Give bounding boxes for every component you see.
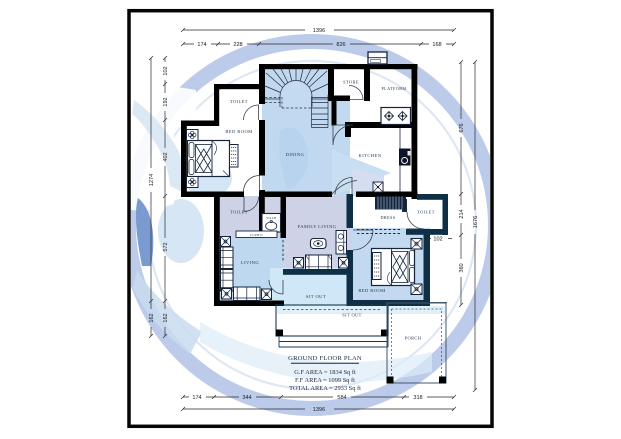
svg-text:102: 102 xyxy=(163,66,169,75)
svg-text:GROUND FLOOR PLAN: GROUND FLOOR PLAN xyxy=(288,355,362,362)
svg-text:344: 344 xyxy=(242,395,251,401)
svg-text:174: 174 xyxy=(192,395,201,401)
svg-text:102: 102 xyxy=(433,237,442,243)
svg-text:WASH: WASH xyxy=(266,216,277,220)
svg-text:KITCHEN: KITCHEN xyxy=(359,153,382,158)
svg-text:1676: 1676 xyxy=(473,216,479,228)
svg-text:1396: 1396 xyxy=(313,407,325,413)
svg-text:STORE: STORE xyxy=(343,80,359,85)
svg-text:CUPB'D: CUPB'D xyxy=(250,233,263,237)
svg-text:FAMILY LIVING: FAMILY LIVING xyxy=(298,224,337,229)
svg-text:826: 826 xyxy=(336,42,345,48)
svg-text:TOILET: TOILET xyxy=(417,210,435,215)
svg-text:162: 162 xyxy=(149,313,155,322)
svg-text:PORCH: PORCH xyxy=(405,336,422,341)
svg-text:TOILET: TOILET xyxy=(230,99,248,104)
svg-text:DINING: DINING xyxy=(286,152,305,157)
svg-text:584: 584 xyxy=(337,395,346,401)
svg-text:F.F AREA = 1099 Sq ft: F.F AREA = 1099 Sq ft xyxy=(295,377,355,384)
svg-text:TOTAL AREA = 2933 Sq ft: TOTAL AREA = 2933 Sq ft xyxy=(289,385,361,392)
svg-text:174: 174 xyxy=(197,42,206,48)
svg-text:BED ROOM: BED ROOM xyxy=(225,129,252,134)
svg-text:TOILET: TOILET xyxy=(230,210,248,215)
svg-text:228: 228 xyxy=(233,42,242,48)
svg-text:SIT OUT: SIT OUT xyxy=(342,313,361,318)
svg-text:1396: 1396 xyxy=(313,28,325,34)
svg-text:1274: 1274 xyxy=(149,174,155,186)
svg-text:LIVING: LIVING xyxy=(241,260,260,265)
svg-text:318: 318 xyxy=(413,395,422,401)
svg-text:DRESS: DRESS xyxy=(380,215,395,220)
svg-text:214: 214 xyxy=(459,209,465,218)
svg-text:SIT OUT: SIT OUT xyxy=(306,294,326,299)
svg-text:BED ROOM: BED ROOM xyxy=(358,288,385,293)
svg-text:192: 192 xyxy=(163,97,169,106)
svg-text:572: 572 xyxy=(163,242,169,251)
svg-text:676: 676 xyxy=(459,123,465,132)
svg-text:PLATFORM: PLATFORM xyxy=(381,86,406,91)
svg-text:360: 360 xyxy=(459,263,465,272)
svg-text:168: 168 xyxy=(432,42,441,48)
svg-text:162: 162 xyxy=(163,313,169,322)
svg-text:402: 402 xyxy=(163,152,169,161)
svg-text:G.F AREA = 1834 Sq ft: G.F AREA = 1834 Sq ft xyxy=(294,369,356,376)
